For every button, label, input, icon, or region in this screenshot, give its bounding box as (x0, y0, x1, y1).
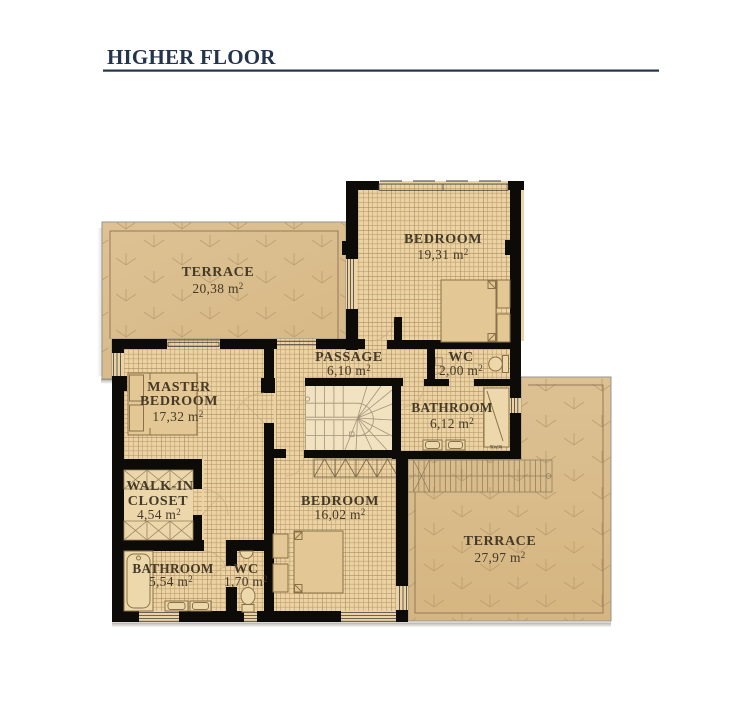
svg-text:20,38 m2: 20,38 m2 (192, 281, 243, 296)
svg-text:19,31 m2: 19,31 m2 (417, 247, 468, 262)
svg-text:6,10 m2: 6,10 m2 (327, 363, 371, 378)
svg-text:TERRACE: TERRACE (182, 265, 255, 280)
svg-text:16,02 m2: 16,02 m2 (314, 507, 365, 522)
svg-text:90x90: 90x90 (490, 446, 503, 451)
svg-text:17,32 m2: 17,32 m2 (152, 409, 203, 424)
svg-text:5,54 m2: 5,54 m2 (149, 574, 193, 589)
svg-text:HIGHER FLOOR: HIGHER FLOOR (107, 45, 276, 69)
svg-text:BEDROOM: BEDROOM (404, 232, 482, 247)
svg-text:1,70 m2: 1,70 m2 (224, 574, 268, 589)
svg-text:WALK-IN: WALK-IN (126, 479, 193, 494)
svg-text:2,00 m2: 2,00 m2 (439, 363, 483, 378)
svg-text:MASTER: MASTER (147, 380, 211, 395)
svg-text:4,54 m2: 4,54 m2 (137, 507, 181, 522)
svg-text:BATHROOM: BATHROOM (411, 400, 493, 415)
svg-text:6,12 m2: 6,12 m2 (430, 416, 474, 431)
svg-text:TERRACE: TERRACE (464, 534, 537, 549)
svg-text:BEDROOM: BEDROOM (140, 394, 218, 409)
svg-text:27,97 m2: 27,97 m2 (474, 550, 525, 565)
